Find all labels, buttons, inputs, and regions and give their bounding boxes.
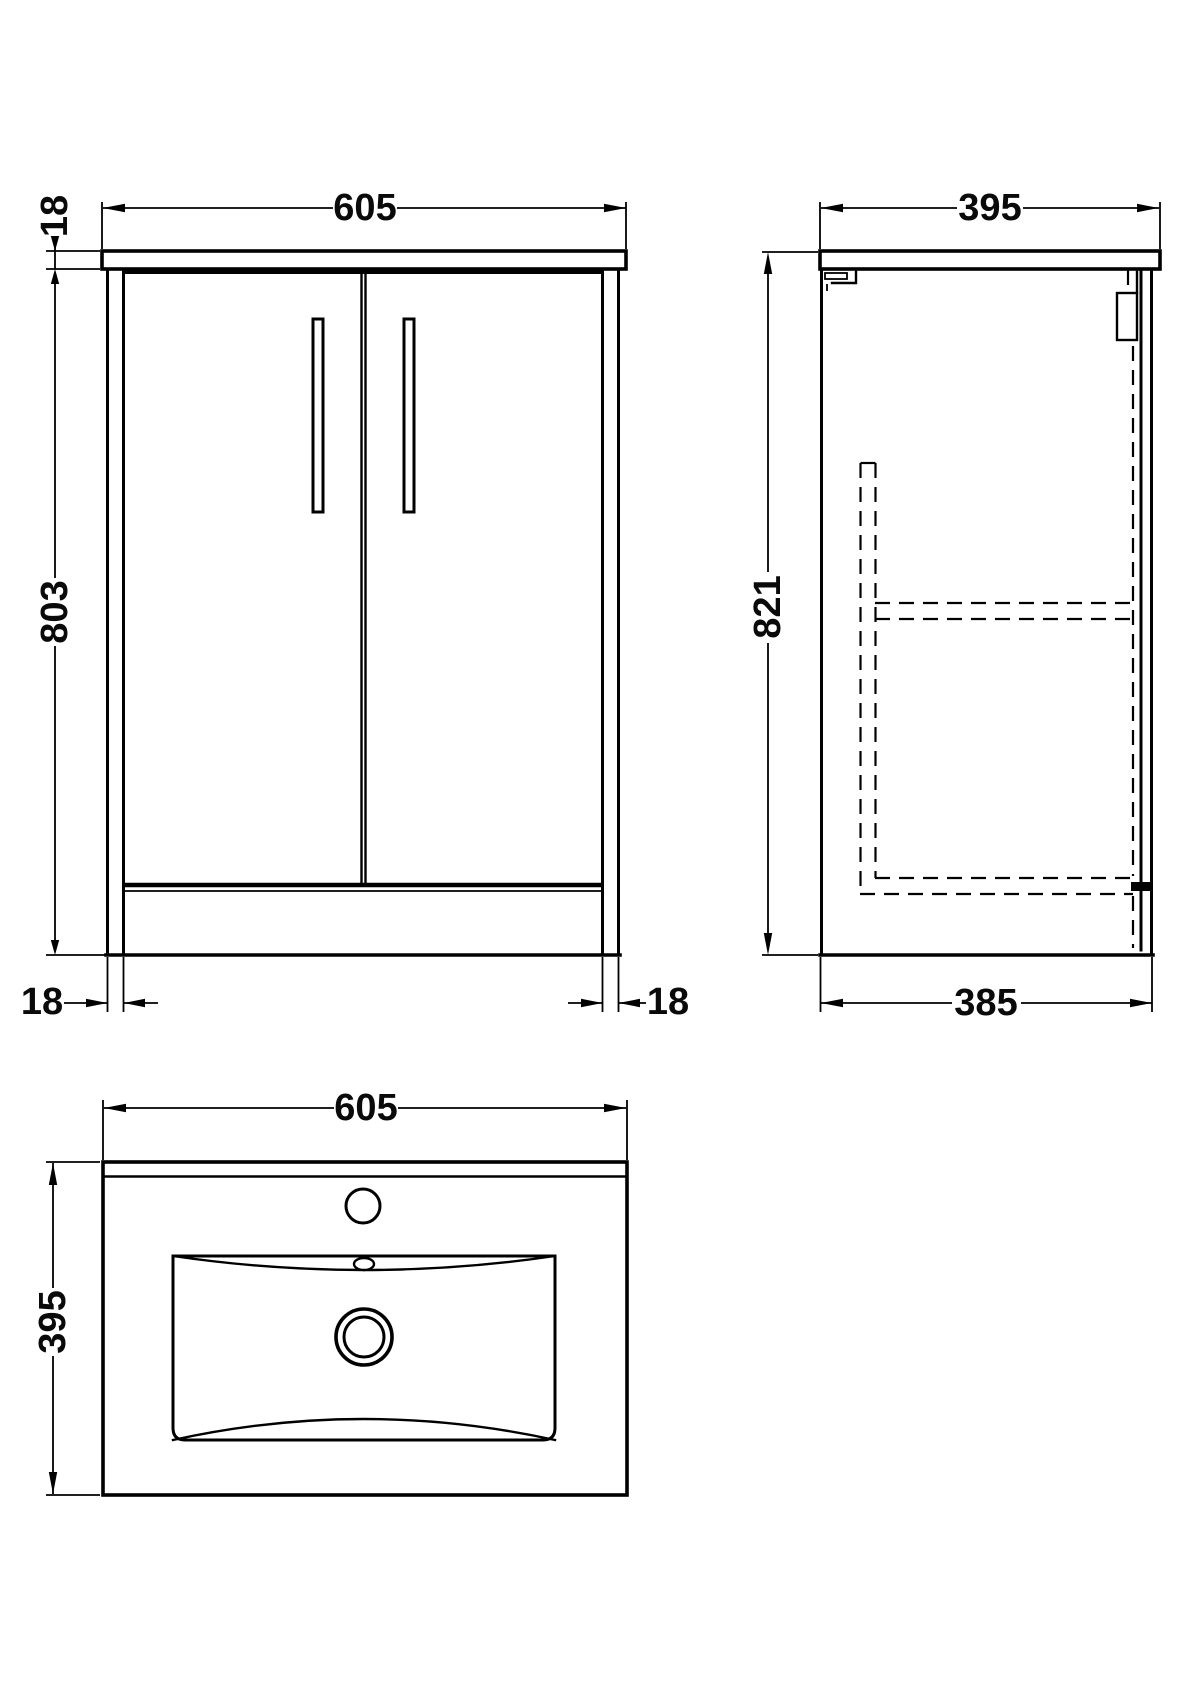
dim-arrowhead — [764, 933, 772, 955]
dim-arrowhead — [86, 999, 108, 1007]
dim-arrowhead — [581, 999, 603, 1007]
drawing-sheet: 605 18 803 18 — [0, 0, 1200, 1698]
front-left-leg-dimension: 18 — [21, 957, 158, 1023]
basin-depth-label: 395 — [32, 1290, 74, 1353]
dim-arrowhead — [604, 1104, 626, 1112]
side-bottom-hinge — [1131, 882, 1153, 891]
dim-arrowhead — [51, 269, 59, 284]
dim-arrowhead — [103, 204, 125, 212]
dim-arrowhead — [49, 1472, 57, 1494]
vanity-technical-drawing: 605 18 803 18 — [0, 0, 1200, 1698]
side-view: 395 821 385 — [747, 187, 1160, 1024]
top-view-basin: 605 395 — [32, 1087, 627, 1495]
overflow-hole — [354, 1258, 374, 1270]
front-view: 605 18 803 18 — [21, 187, 689, 1023]
front-width-label: 605 — [333, 187, 396, 229]
dim-arrowhead — [821, 999, 843, 1007]
side-base-depth-label: 385 — [954, 982, 1017, 1024]
basin-width-dimension: 605 — [103, 1087, 627, 1160]
drain-waste-inner — [344, 1317, 384, 1357]
front-counter-thickness-label: 18 — [34, 195, 76, 237]
front-left-leg-label: 18 — [21, 981, 63, 1023]
dim-arrowhead — [124, 999, 146, 1007]
dim-arrowhead — [821, 204, 843, 212]
dim-arrowhead — [51, 236, 59, 251]
front-width-dimension: 605 — [102, 187, 626, 249]
basin-depth-dimension: 395 — [32, 1162, 100, 1495]
dim-arrowhead — [604, 204, 626, 212]
dim-arrowhead — [764, 252, 772, 274]
dim-arrowhead — [49, 1163, 57, 1185]
side-top-hinge — [1117, 293, 1137, 340]
front-height-label: 803 — [34, 580, 76, 643]
front-right-leg-label: 18 — [647, 981, 689, 1023]
dim-arrowhead — [51, 940, 59, 955]
front-right-door-handle — [404, 319, 414, 512]
front-countertop — [102, 251, 626, 269]
side-depth-dimension: 395 — [820, 187, 1160, 249]
side-worktop-bracket-slot — [825, 273, 847, 279]
side-depth-label: 395 — [958, 187, 1021, 229]
front-height-dimension: 803 — [34, 284, 105, 955]
dim-arrowhead — [619, 999, 641, 1007]
front-right-leg-dimension: 18 — [568, 957, 689, 1023]
dim-arrowhead — [1130, 999, 1152, 1007]
dim-arrowhead — [104, 1104, 126, 1112]
side-countertop — [820, 251, 1160, 269]
side-height-dimension: 821 — [747, 252, 818, 955]
front-left-door-handle — [313, 319, 323, 512]
faucet-hole — [346, 1189, 380, 1223]
front-counter-thickness-dimension: 18 — [34, 195, 100, 284]
side-height-label: 821 — [747, 575, 789, 638]
side-base-depth-dimension: 385 — [821, 957, 1153, 1024]
dim-arrowhead — [1137, 204, 1159, 212]
basin-width-label: 605 — [334, 1087, 397, 1129]
